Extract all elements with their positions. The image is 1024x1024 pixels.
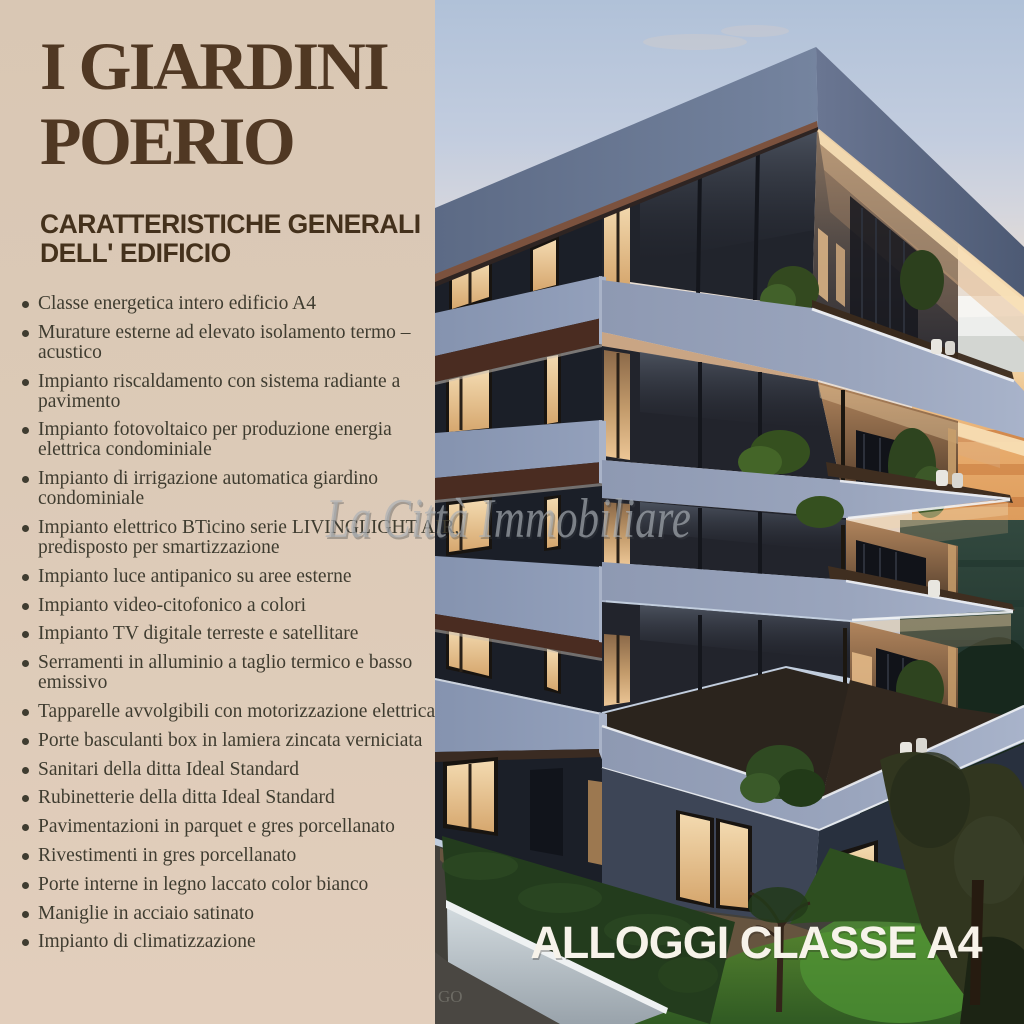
svg-text:GO: GO <box>438 987 463 1006</box>
svg-text:La Città Immobiliare: La Città Immobiliare <box>325 487 691 550</box>
svg-text:ALLOGGI CLASSE A4: ALLOGGI CLASSE A4 <box>530 917 982 968</box>
